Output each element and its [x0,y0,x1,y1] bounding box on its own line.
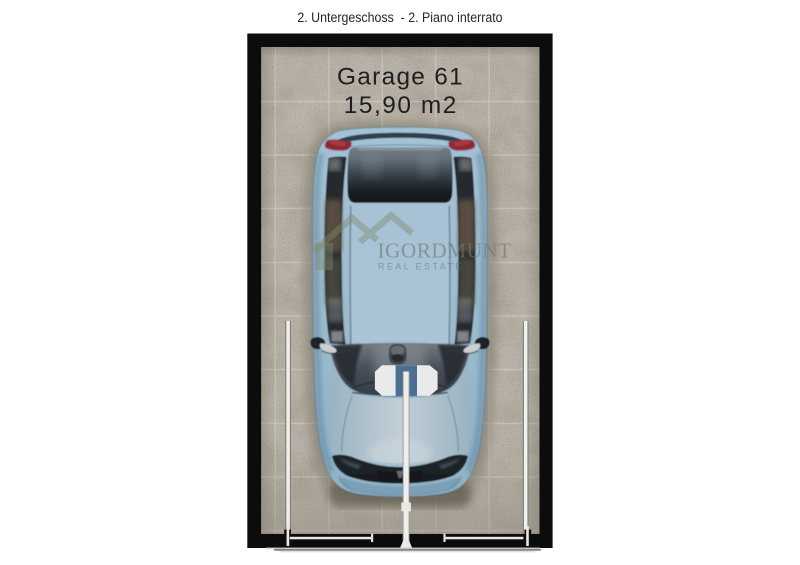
svg-text:Garage 61: Garage 61 [337,64,464,91]
svg-text:REAL ESTATE: REAL ESTATE [378,261,464,271]
svg-text:15,90 m2: 15,90 m2 [344,92,458,119]
svg-text:IGORDMUNT: IGORDMUNT [378,239,512,263]
